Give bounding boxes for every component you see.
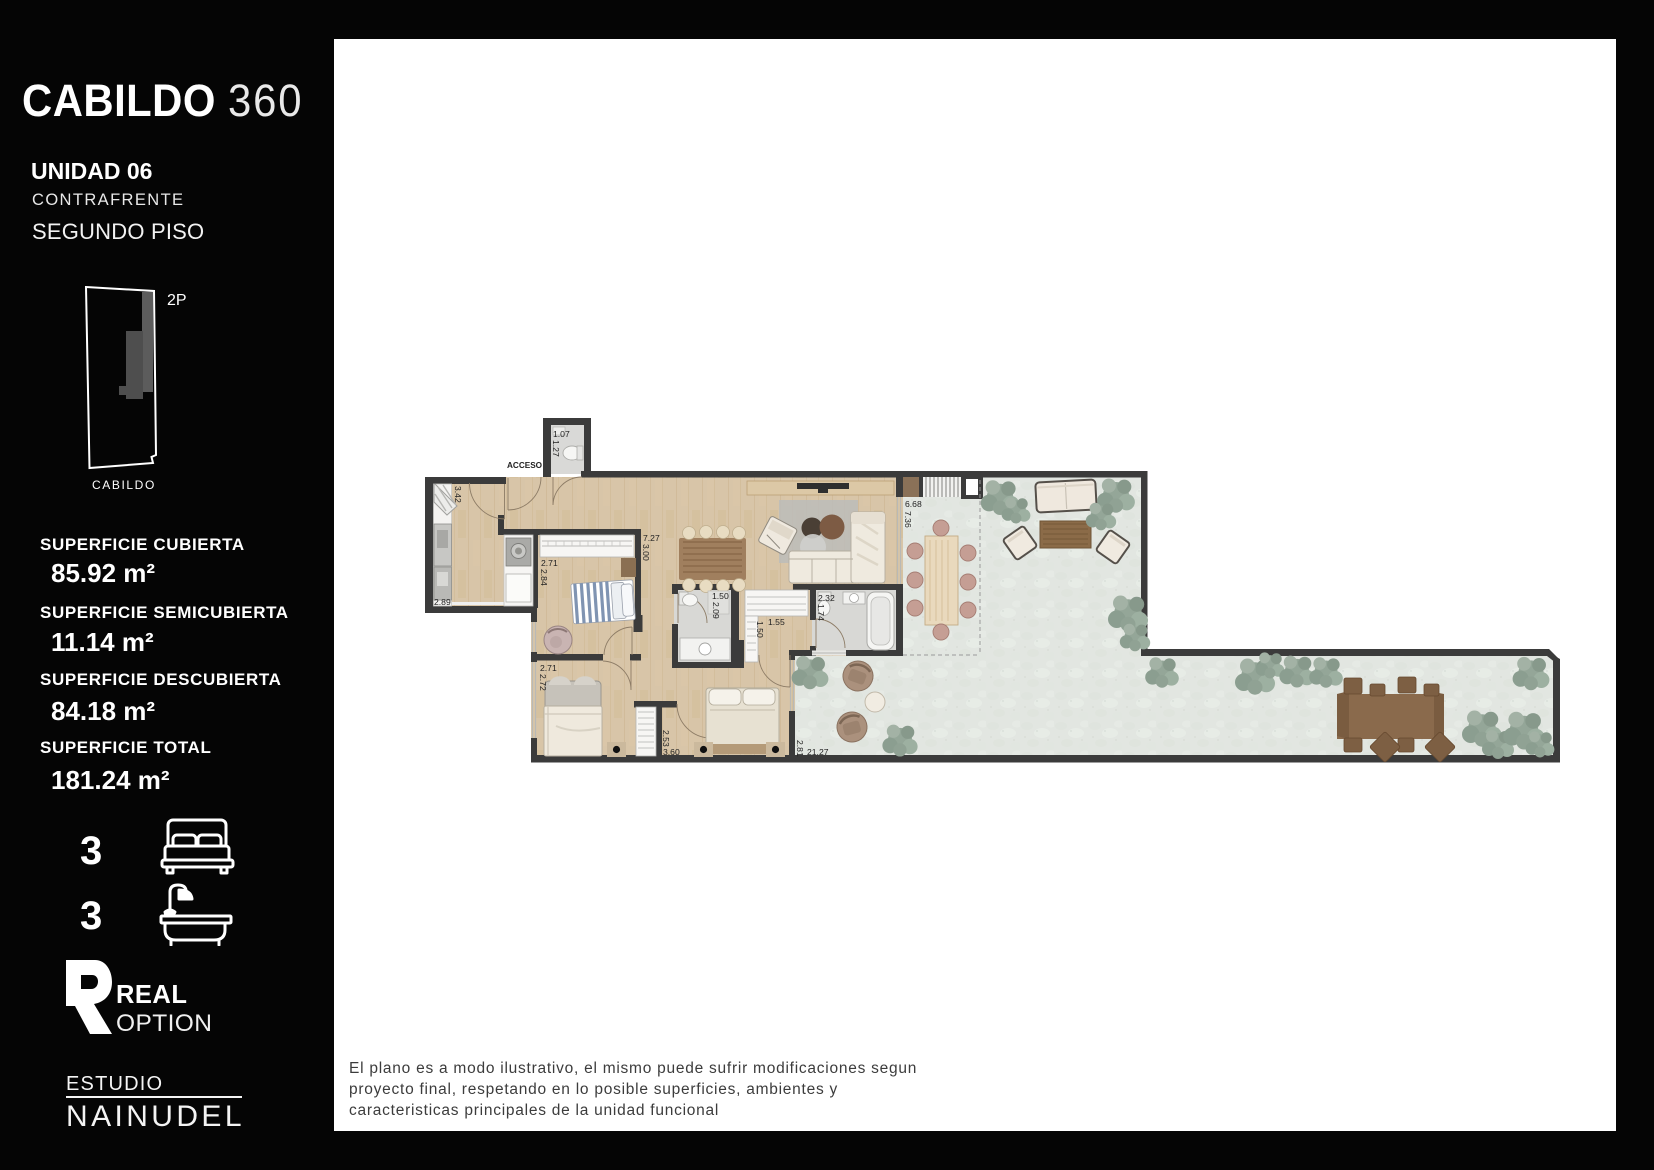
svg-text:2.89: 2.89 [434,597,451,607]
svg-text:2.71: 2.71 [541,558,558,568]
svg-text:1.27: 1.27 [551,440,561,457]
svg-text:6.68: 6.68 [905,499,922,509]
svg-text:3.60: 3.60 [663,747,680,757]
svg-text:1.07: 1.07 [553,429,570,439]
svg-text:REAL: REAL [116,981,187,1009]
svg-text:ACCESO: ACCESO [507,461,543,470]
svg-text:2.09: 2.09 [711,602,721,619]
svg-text:1.50: 1.50 [755,621,765,638]
svg-text:2.72: 2.72 [538,674,548,691]
svg-text:2.84: 2.84 [539,569,549,586]
svg-text:7.27: 7.27 [643,533,660,543]
svg-text:1.50: 1.50 [712,591,729,601]
svg-text:2.32: 2.32 [818,593,835,603]
svg-text:21.27: 21.27 [807,747,829,757]
svg-text:2.81: 2.81 [795,740,805,757]
svg-text:CABILDO: CABILDO [92,478,156,492]
svg-text:3.00: 3.00 [641,544,651,561]
svg-text:2.53: 2.53 [661,730,671,747]
svg-text:OPTION: OPTION [116,1010,212,1037]
svg-text:7.36: 7.36 [903,511,913,528]
svg-text:3.42: 3.42 [453,486,463,503]
svg-text:2.71: 2.71 [540,663,557,673]
svg-text:1.74: 1.74 [816,604,826,621]
svg-text:1.55: 1.55 [768,617,785,627]
svg-text:2P: 2P [167,292,187,309]
